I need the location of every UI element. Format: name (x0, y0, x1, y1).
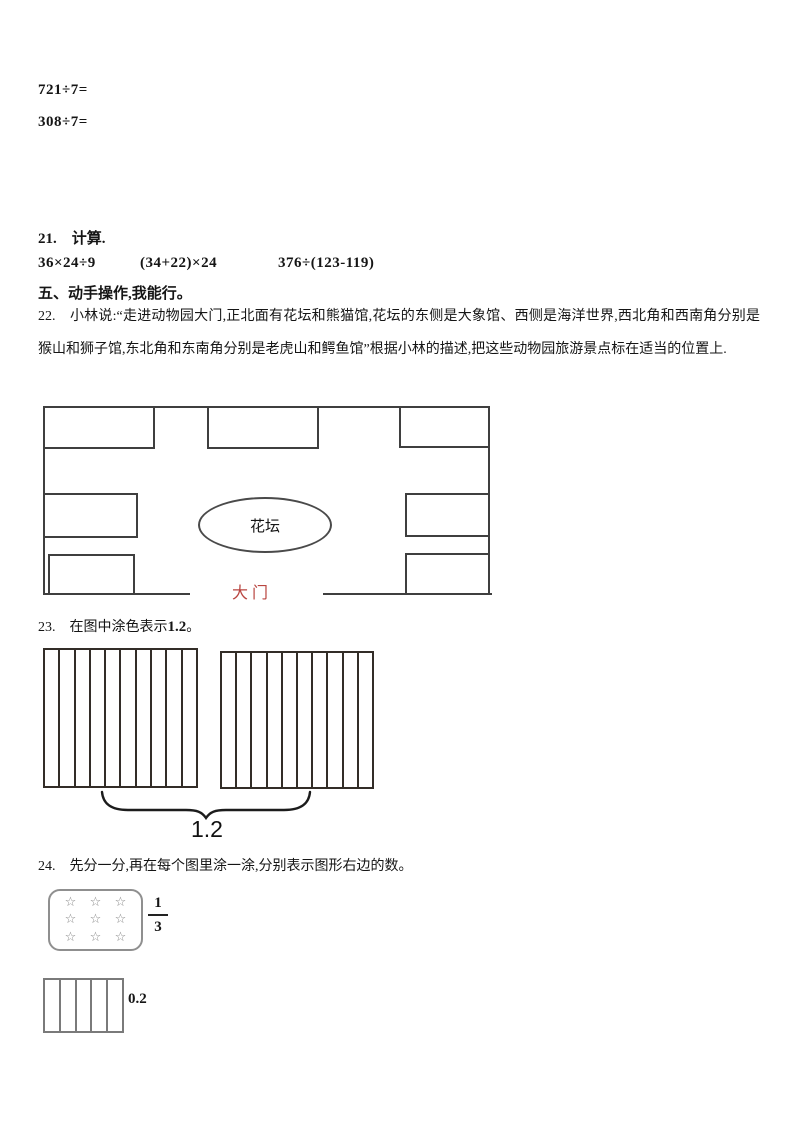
q21-expression-1: 36×24÷9 (38, 255, 96, 272)
q22-text: 22. 小林说:“走进动物园大门,正北面有花坛和熊猫馆,花坛的东侧是大象馆、西侧… (38, 300, 760, 366)
q21-expression-3: 376÷(123-119) (278, 255, 374, 272)
pavilion-box-middle-right (405, 493, 490, 537)
bottom-wall-right-segment (323, 593, 492, 595)
fraction-denominator: 3 (148, 916, 168, 937)
pavilion-box-top-center (207, 406, 319, 449)
decimal-grid-left[interactable] (43, 648, 198, 788)
worksheet-page: 721÷7= 308÷7= 21. 计算. 36×24÷9 (34+22)×24… (0, 0, 794, 1123)
equation-308-div-7: 308÷7= (38, 114, 88, 131)
brace-value-label: 1.2 (172, 816, 242, 843)
star-box[interactable]: ☆ ☆ ☆ ☆ ☆ ☆ ☆ ☆ ☆ (48, 889, 143, 951)
q23-title: 23. 在图中涂色表示1.2。 (38, 616, 200, 636)
fraction-one-third: 1 3 (148, 893, 168, 937)
fifths-strip-rect[interactable] (43, 978, 124, 1033)
pavilion-box-bottom-left (48, 554, 135, 595)
star-icon: ☆ (90, 930, 102, 945)
pavilion-box-top-left (43, 406, 155, 449)
star-icon: ☆ (65, 912, 77, 927)
zoo-map-diagram: 花坛 大门 (43, 406, 490, 593)
pavilion-box-bottom-right (405, 553, 490, 595)
gate-label: 大门 (226, 579, 278, 603)
q21-expression-2: (34+22)×24 (140, 255, 217, 272)
q24-title: 24. 先分一分,再在每个图里涂一涂,分别表示图形右边的数。 (38, 855, 413, 875)
star-icon: ☆ (115, 895, 127, 910)
star-icon: ☆ (90, 912, 102, 927)
star-icon: ☆ (65, 930, 77, 945)
decimal-value-label: 0.2 (128, 991, 147, 1008)
star-icon: ☆ (65, 895, 77, 910)
flowerbed-label: 花坛 (250, 515, 280, 536)
star-icon: ☆ (115, 912, 127, 927)
pavilion-box-middle-left (43, 493, 138, 538)
star-icon: ☆ (90, 895, 102, 910)
bottom-wall-left-segment (43, 593, 190, 595)
equation-721-div-7: 721÷7= (38, 82, 88, 99)
q23-title-value: 1.2 (168, 619, 187, 635)
q23-title-suffix: 。 (186, 620, 200, 635)
q21-title: 21. 计算. (38, 227, 106, 248)
star-icon: ☆ (115, 930, 127, 945)
fraction-numerator: 1 (148, 893, 168, 916)
q23-title-prefix: 23. 在图中涂色表示 (38, 620, 168, 635)
flowerbed-ellipse: 花坛 (198, 497, 332, 553)
decimal-grid-right[interactable] (220, 651, 374, 789)
pavilion-box-top-right (399, 406, 490, 448)
